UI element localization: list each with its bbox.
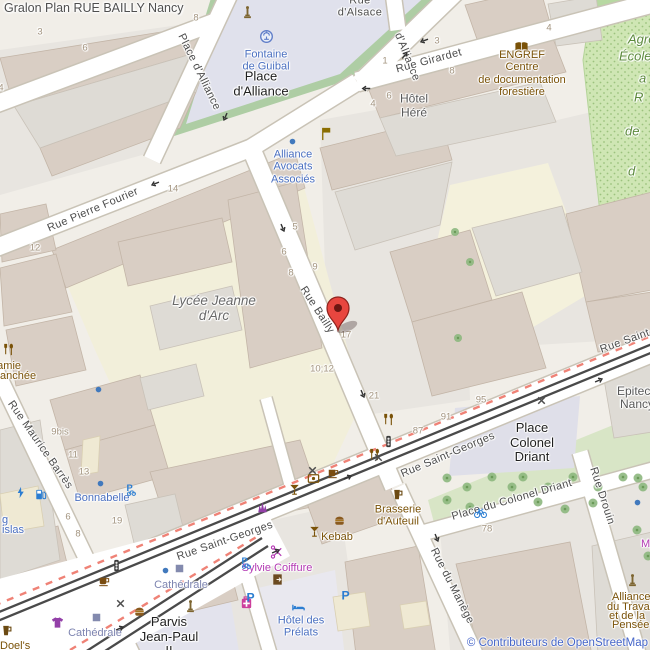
map-base-layer bbox=[0, 0, 650, 650]
page-title: Gralon Plan RUE BAILLY Nancy bbox=[4, 1, 184, 15]
map-canvas[interactable]: Place d'Allianced'AllianceRue d'AlsaceRu… bbox=[0, 0, 650, 650]
osm-attribution-link[interactable]: © Contributeurs de OpenStreetMap bbox=[467, 637, 648, 649]
